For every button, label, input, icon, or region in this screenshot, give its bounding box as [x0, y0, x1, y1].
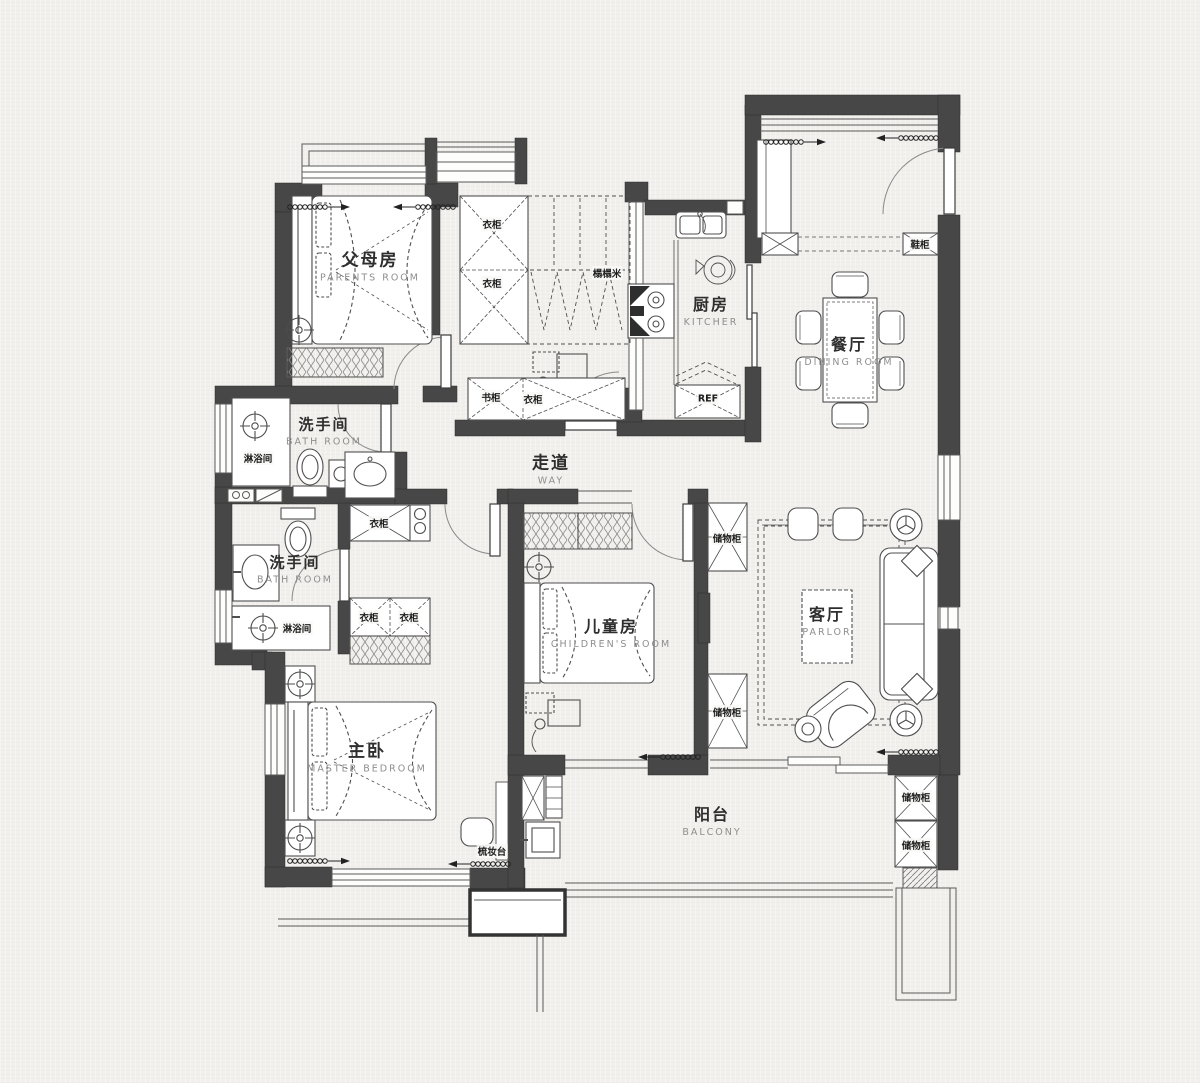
parents-bench: [287, 348, 383, 377]
bath1-toilet: [293, 449, 327, 497]
room-name-en: CHILDREN'S ROOM: [551, 639, 671, 651]
foyer-cabinet: [757, 140, 791, 238]
fixture-label: 书柜: [480, 390, 501, 404]
room-label-dining-room: 餐厅DINING ROOM: [804, 335, 893, 369]
fixture-label: 衣柜: [358, 610, 379, 624]
kitchen-fridge: [675, 362, 740, 418]
room-name-en: PARENTS ROOM: [320, 272, 420, 284]
kitchen-stove: [628, 284, 674, 338]
room-name-cn: 阳台: [682, 805, 741, 826]
room-label-kitchen: 厨房KITCHER: [684, 295, 739, 329]
fixture-label: 淋浴间: [282, 621, 313, 635]
room-name-en: BALCONY: [682, 827, 741, 839]
room-label-corridor: 走道WAY: [532, 452, 570, 487]
room-name-cn: 客厅: [802, 605, 851, 626]
kitchen-sink: [676, 212, 726, 238]
fixture-label: 衣柜: [368, 516, 389, 530]
fixture-label: 淋浴间: [243, 451, 274, 465]
fixture-label: REF: [697, 394, 719, 405]
room-label-bath-room-1: 洗手间BATH ROOM: [286, 416, 362, 449]
fixture-label: 衣柜: [522, 392, 543, 406]
children-downlight-icon: [524, 552, 554, 582]
room-label-master-bedroom: 主卧MASTER BEDROOM: [307, 740, 427, 775]
room-name-cn: 厨房: [684, 295, 739, 316]
kitchen-counter-edge: [674, 240, 678, 385]
fixture-label: 储物柜: [901, 790, 932, 804]
room-label-balcony: 阳台BALCONY: [682, 805, 741, 839]
room-name-en: WAY: [532, 475, 570, 487]
fixture-label: 梳妆台: [477, 844, 508, 858]
fixture-label: 储物柜: [712, 531, 743, 545]
floor-plan: 父母房PARENTS ROOM厨房KITCHER餐厅DINING ROOM洗手间…: [0, 0, 1200, 1083]
room-name-cn: 走道: [532, 452, 570, 474]
balcony-left-units: [520, 776, 562, 858]
children-desk: [526, 693, 580, 752]
fixture-label: 榻榻米: [592, 266, 623, 280]
parlor-cushion-2: [833, 508, 863, 540]
parlor-lamp-icon-2: [890, 704, 922, 736]
fixture-label: 衣柜: [398, 610, 419, 624]
room-name-cn: 洗手间: [286, 416, 362, 436]
room-label-bath-room-2: 洗手间BATH ROOM: [257, 554, 333, 587]
room-label-parlor: 客厅PARLOR: [802, 605, 851, 639]
parlor-cushion: [788, 508, 818, 540]
room-label-parents-room: 父母房PARENTS ROOM: [320, 249, 420, 284]
kitchen-kettle: [696, 256, 735, 284]
room-name-en: MASTER BEDROOM: [307, 763, 427, 775]
room-name-cn: 餐厅: [804, 335, 893, 356]
room-name-cn: 洗手间: [257, 554, 333, 574]
room-name-en: BATH ROOM: [257, 574, 333, 586]
bath1-vanity: [345, 452, 395, 498]
room-name-cn: 主卧: [307, 740, 427, 762]
room-name-en: DINING ROOM: [804, 357, 893, 369]
floorplan-drawing: [0, 0, 1200, 1083]
parlor-sofa: [880, 545, 938, 704]
closet-cabinets: [350, 505, 430, 664]
fixture-label: 衣柜: [481, 217, 502, 231]
room-name-en: BATH ROOM: [286, 436, 362, 448]
room-name-en: PARLOR: [802, 627, 851, 639]
room-name-en: KITCHER: [684, 317, 739, 329]
fixture-label: 储物柜: [901, 838, 932, 852]
room-name-cn: 儿童房: [551, 617, 671, 638]
bath2-toilet: [281, 508, 315, 557]
fixture-label: 衣柜: [481, 276, 502, 290]
bath1-shower: [232, 398, 290, 486]
fixture-label: 储物柜: [712, 705, 743, 719]
parlor-lamp-icon: [890, 509, 922, 541]
parlor-side-table: [795, 716, 821, 742]
room-label-childrens-room: 儿童房CHILDREN'S ROOM: [551, 617, 671, 651]
room-name-cn: 父母房: [320, 249, 420, 271]
fixture-label: 鞋柜: [909, 237, 930, 251]
